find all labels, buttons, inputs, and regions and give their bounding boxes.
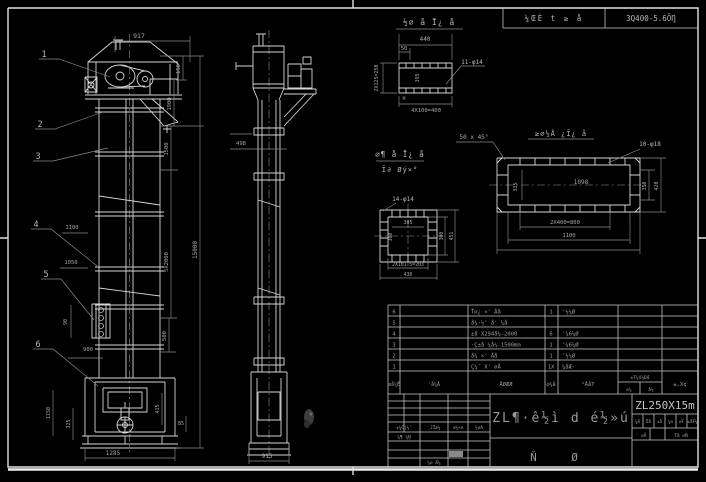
dim-1150: 1150 (46, 407, 52, 419)
dim-1100-plate: 1100 (562, 233, 575, 239)
center-lines (130, 30, 649, 460)
detail-channel-outline (399, 63, 452, 93)
balloon-4: 4 (33, 220, 38, 230)
bom-name: å¼·½ʼ å' ¼å (471, 320, 507, 327)
dim-1285: 1285 (106, 450, 121, 457)
detail-long-plate: ≥∅½Å ¿Ī¿ å 50 x 45° 10-φ18 1098 335 2X40… (456, 129, 666, 254)
dim-90: 90 (63, 319, 69, 325)
bom-no: 5 (392, 321, 395, 327)
dim-451: 451 (449, 232, 455, 241)
bom-row: 5 å¼·½ʼ å' ¼å (392, 320, 507, 327)
holes-label-10-d18: 10-φ18 (639, 141, 661, 148)
dim-1098: 1098 (574, 179, 589, 186)
drive-shaft (116, 72, 124, 80)
bom-header-weight: ±Ŧ¼X¼ĐÆ (631, 375, 650, 381)
stage-strip: ¼Æ Ďå ±å ¼∅ ∅Ŧ ±åŦ¼ (635, 419, 698, 425)
holes-label-14-d14: 14-φ14 (392, 196, 414, 203)
dim-150: 150 (176, 64, 182, 74)
balloon-6: 6 (35, 340, 40, 350)
side-view-outline (236, 34, 316, 455)
dim-900: 900 (83, 347, 93, 353)
assembly-label: Ň Ø (530, 451, 592, 464)
bom-material: '¼6¼Ø (562, 331, 579, 338)
title-block: ±¼Ĉ|¼' ¸JĪæ¼ ∅¼×∅ ¼∅å ¼¶ ¼Ņ ¼∅ Æ¼ ZL¶·ê½… (388, 394, 698, 467)
dim-2x101: 2X101.5=203 (392, 262, 424, 268)
bom-row: 2 å¼ ×' Åå 1 '½¼Ø (392, 353, 576, 360)
dim-335: 335 (513, 182, 519, 191)
dim-498: 498 (236, 141, 246, 147)
head-drive-pulley (88, 65, 153, 88)
dim-420: 420 (654, 181, 660, 190)
dim-1500: 1500 (164, 142, 170, 155)
balloon-1: 1 (41, 50, 46, 60)
balloon-5: 5 (43, 270, 48, 280)
stage-cell: ∅Ŧ (679, 419, 685, 424)
side-view-elevator: 498 915 (230, 34, 316, 464)
motor-shaft (143, 77, 148, 82)
mid-view-title-line2: Ī∂ Øý×° (382, 165, 419, 174)
sheet-count-left: ' ∅Å (636, 432, 647, 439)
bom-qty: 1X (548, 365, 555, 371)
bom-header-material: ²ÅåT (581, 381, 595, 388)
bom-qty: 6 (549, 332, 552, 338)
bom-header-code: 'å¼Å (428, 381, 440, 388)
bom-header-weight-sub1: ∅¼ (626, 387, 632, 393)
designer-label: ¼¶ ¼Ņ (397, 435, 411, 441)
weld-mark: M (403, 96, 406, 102)
dim-2x125: 2X125=250 (374, 64, 380, 91)
detail-channel-flange: ½∅ å Ī¿ å 440 50 11-φ14 2X125=250 395 M … (374, 17, 485, 114)
sig-header-cell: ∅¼×∅ (453, 425, 464, 431)
dim-915: 915 (262, 453, 273, 460)
sig-header-cell: ¼∅å (475, 424, 483, 431)
boot-parts (99, 308, 134, 434)
dim-2x400: 2X400=800 (550, 220, 580, 226)
bom-header-qty: ∅¼å (546, 381, 555, 388)
drive-pulley (105, 65, 135, 87)
dim-300-left: 300 (388, 233, 394, 242)
dim-305: 305 (403, 220, 412, 226)
bom-qty: 1 (549, 310, 552, 316)
stage-cell: ±åŦ¼ (687, 419, 698, 425)
detail-plate-dim-lines (456, 139, 666, 254)
bom-material: '¼6¼Ø (562, 342, 579, 349)
bom-material: ¼åÆ· (562, 364, 575, 371)
bom-no: 4 (392, 332, 396, 338)
bom-material: '½¼Ø (562, 353, 576, 360)
bom-row: 6 Ť∅¿ ×' Åå 1 '½¼Ø (392, 308, 576, 316)
drawing-canvas: ¼ŒÈ t ≥ å 3Q400-5.6ŌŊ 917 150 1900 1500 … (0, 0, 706, 482)
smudge-artifact (304, 409, 314, 428)
drawing-title: ZL¶·ê½ì d é½»ú (492, 411, 630, 426)
dim-350: 350 (642, 181, 648, 190)
dim-325: 325 (66, 419, 72, 428)
dim-415: 415 (155, 404, 161, 413)
bom-name: Ť∅¿ ×' Åå (471, 308, 501, 316)
bom-qty: 1 (549, 343, 552, 349)
front-view-dim-lines (31, 36, 204, 461)
holes-label-11-d14: 11-φ14 (461, 59, 483, 66)
dim-15000-overall: 15000 (192, 241, 199, 259)
bom-header-row: ∅å¼Ě 'å¼Å ÅØÆÆ ∅¼å ²ÅåT ±Ŧ¼X¼ĐÆ ∅¼ å¼ ±,… (388, 375, 687, 393)
bom-no: 1 (392, 365, 395, 371)
dim-430: 430 (404, 272, 413, 278)
dim-395: 395 (415, 73, 421, 82)
header-table: ¼ŒÈ t ≥ å 3Q400-5.6ŌŊ (503, 8, 698, 28)
balloon-3: 3 (35, 152, 40, 162)
signature-area: ±¼Ĉ|¼' ¸JĪæ¼ ∅¼×∅ ¼∅å ¼¶ ¼Ņ ¼∅ Æ¼ (396, 423, 483, 466)
bom-no: 6 (392, 310, 395, 316)
bom-table: 6 Ť∅¿ ×' Åå 1 '½¼Ø 5 å¼·½ʼ å' ¼å 4 ±å X2… (388, 305, 698, 467)
chamfer-note: 50 x 45° (460, 134, 489, 141)
bom-row: 4 ±å X294å¼-2000 6 '¼6¼Ø (392, 331, 579, 338)
bom-no: 2 (392, 354, 395, 360)
standard-label: ¼∅ Æ¼ (427, 460, 441, 466)
dim-300-right: 300 (439, 232, 445, 241)
front-view-elevator: 917 150 1900 1500 5X2000 15000 500 1100 … (31, 32, 204, 461)
dim-5x2000: 5X2000 (164, 252, 170, 272)
mid-view-label: ∅¶ å Ī¿ å Ī∂ Øý×° (375, 150, 425, 174)
dim-85: 85 (178, 421, 184, 427)
dim-500: 500 (162, 331, 168, 341)
bom-header-remark: ±,X¢ (673, 382, 686, 388)
dim-50: 50 (401, 46, 408, 52)
detail-square-flange: 14-φ14 305 300 300 451 2X101.5=203 430 (380, 196, 459, 280)
model-number: ZL250X15m (635, 399, 695, 412)
bom-material: '½¼Ø (562, 309, 576, 316)
dim-1100: 1100 (65, 225, 78, 231)
dim-4x100: 4X100=400 (411, 108, 441, 114)
drive-spec-cell: 3Q400-5.6ŌŊ (626, 14, 676, 23)
bom-header-no: ∅å¼Ě (388, 380, 400, 388)
bom-qty: 1 (549, 354, 552, 360)
bom-name: Ç¼˝ X' ∅Å (471, 364, 501, 371)
bom-name: ±å X294å¼-2000 (471, 331, 517, 338)
dim-1050: 1050 (64, 260, 77, 266)
stage-cell: Ďå (646, 419, 652, 424)
cad-drawing-sheet: ¼ŒÈ t ≥ å 3Q400-5.6ŌŊ 917 150 1900 1500 … (0, 0, 706, 482)
stage-cell: ¼Æ (635, 419, 641, 425)
bom-header-weight-sub2: å¼ (648, 386, 654, 393)
balloon-labels: 1 2 3 4 5 6 (33, 50, 48, 350)
mid-view-title-line1: ∅¶ å Ī¿ å (375, 150, 425, 159)
bom-header-name: ÅØÆÆ (499, 381, 513, 388)
bom-no: 3 (392, 343, 395, 349)
bom-name: ·Ç±å ¼å¼-1500mm (471, 342, 521, 349)
detail-channel-title: ½∅ å Ī¿ å (403, 17, 455, 27)
stage-cell: ¼∅ (668, 419, 674, 425)
smudge-blob-small (304, 420, 310, 428)
detail-plate-title: ≥∅½Å ¿Ī¿ å (535, 129, 587, 138)
sheet-count-right: Ŧå ∅Ň (674, 432, 688, 439)
frame-border (8, 8, 698, 467)
sig-header-cell: ¸JĪæ¼ (428, 424, 441, 431)
smudge-highlight (310, 413, 313, 416)
bom-row: 3 ·Ç±å ¼å¼-1500mm 1 '¼6¼Ø (392, 342, 579, 349)
bom-row: 1 Ç¼˝ X' ∅Å 1X ¼åÆ· (392, 364, 575, 371)
stage-cell: ±å (657, 419, 663, 424)
bom-name: å¼ ×' Åå (471, 353, 498, 360)
dim-917: 917 (133, 32, 145, 40)
dim-1900: 1900 (167, 97, 173, 110)
signature-mark (449, 451, 463, 457)
balloon-2: 2 (37, 120, 42, 130)
project-name-cell: ¼ŒÈ t ≥ å (525, 14, 584, 23)
dim-440: 440 (420, 36, 431, 43)
